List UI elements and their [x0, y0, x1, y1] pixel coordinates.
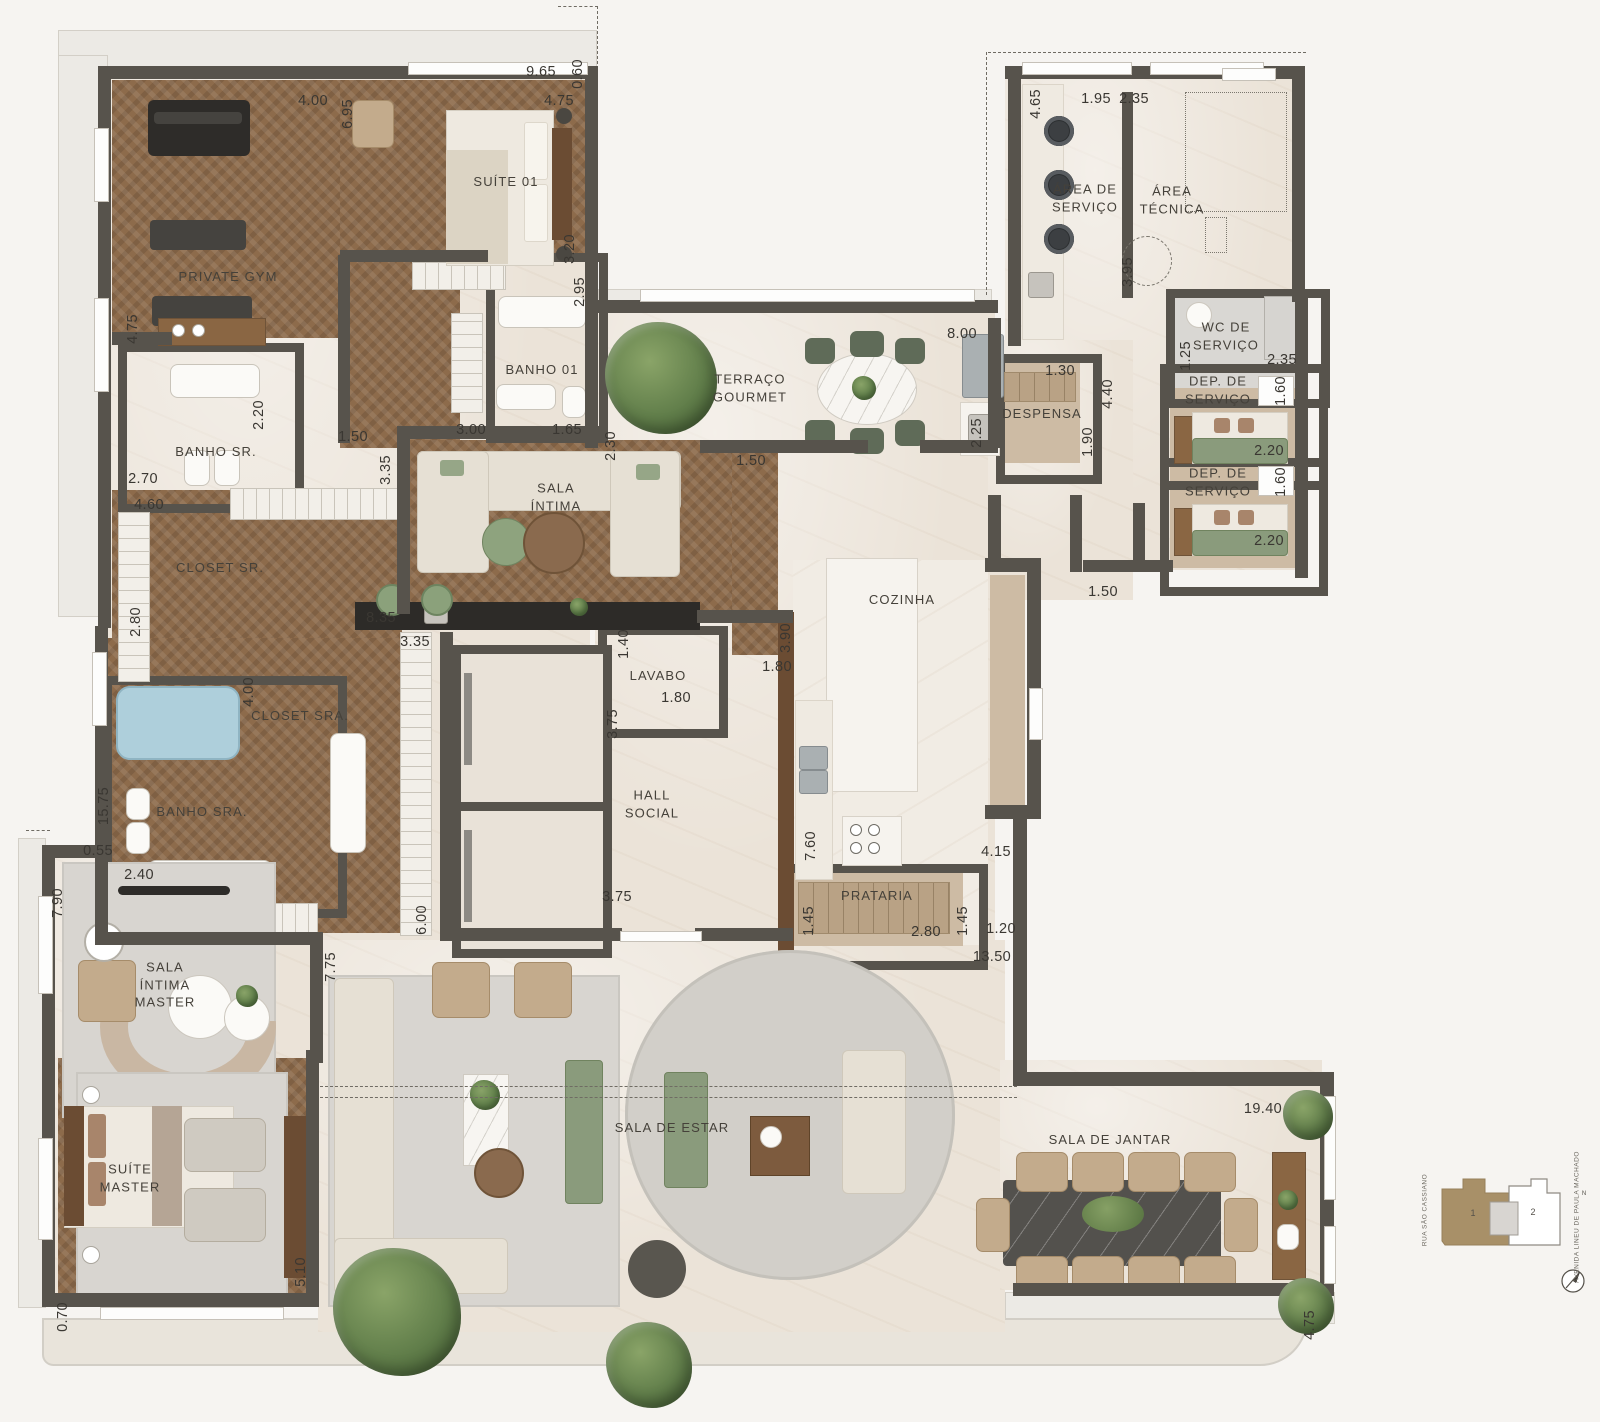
wall [700, 440, 795, 453]
dimension-label: 4.40 [1100, 379, 1116, 409]
furniture-dk2 [154, 112, 242, 124]
wardrobe [230, 488, 406, 520]
dimension-label: 1.30 [1045, 363, 1075, 379]
furniture-tub [116, 686, 240, 760]
dimension-label: 6.95 [340, 99, 356, 129]
room-label-terraco-gourmet: TERRAÇO GOURMET [713, 370, 787, 405]
dimension-label: 4.75 [1302, 1310, 1318, 1340]
site-key-unit2-number: 2 [1530, 1207, 1535, 1217]
room-label-suite-master: SUÍTE MASTER [100, 1160, 161, 1195]
furniture-dotw [82, 1246, 100, 1264]
dimension-label: 7.90 [50, 888, 66, 918]
furniture-circwood [523, 512, 585, 574]
room-label-area-tecnica: ÁREA TÉCNICA [1140, 182, 1205, 217]
furniture-chaise [184, 1118, 266, 1172]
dimension-label: 3.35 [378, 455, 394, 485]
street-label-left: RUA SÃO CASSIANO [1422, 1174, 1429, 1246]
dimension-label: 3.90 [778, 623, 794, 653]
window [100, 1307, 284, 1320]
dimension-label: 6.00 [414, 905, 430, 935]
room-label-lavabo: LAVABO [630, 667, 687, 685]
furniture-fixw [496, 384, 556, 410]
furniture-sofac [842, 1050, 906, 1194]
dimension-label: 3.75 [602, 889, 632, 905]
dimension-label: 1.60 [1273, 376, 1289, 406]
dimension-label: 1.50 [338, 429, 368, 445]
dashed-boundary [986, 52, 987, 295]
dimension-label: 2.95 [572, 277, 588, 307]
furniture-burn [868, 842, 880, 854]
wardrobe [412, 262, 506, 290]
furniture-tanc [1128, 1152, 1180, 1192]
dimension-label: 3.35 [400, 634, 430, 650]
furniture-pillbr [1238, 510, 1254, 525]
furniture-dk [148, 100, 250, 156]
dimension-label: 2.70 [128, 471, 158, 487]
dimension-label: 0.60 [570, 59, 586, 89]
room-label-banho-sra: BANHO SRA. [156, 803, 247, 821]
furniture-greenb [565, 1060, 603, 1204]
room-label-sala-intima-master: SALA ÍNTIMA MASTER [135, 959, 196, 1012]
dimension-label: 4.00 [241, 677, 257, 707]
dashed-boundary [26, 830, 50, 831]
furniture-blank [446, 150, 508, 264]
wall [440, 632, 453, 932]
dimension-label: 2.40 [124, 867, 154, 883]
dimension-label: 8.35 [366, 610, 396, 626]
furniture-woodc [1174, 416, 1194, 464]
dimension-label: 4.65 [1028, 89, 1044, 119]
room-label-closet-sr: CLOSET SR. [176, 559, 264, 577]
room-label-hall-social: HALL SOCIAL [625, 786, 679, 821]
dimension-label: 9.65 [526, 64, 556, 80]
wall [112, 332, 172, 345]
furniture-tanc [514, 962, 572, 1018]
room-label-area-de-servico: ÁREA DE SERVIÇO [1052, 180, 1118, 215]
elevator-door [464, 830, 472, 922]
room-label-private-gym: PRIVATE GYM [178, 268, 277, 286]
furniture-fixg [1028, 272, 1054, 298]
furniture-tanc [1072, 1152, 1124, 1192]
window [1022, 62, 1132, 75]
window [38, 1138, 53, 1240]
furniture-pillbr [1214, 510, 1230, 525]
dimension-label: 4.75 [125, 314, 141, 344]
furniture-stoolg [421, 584, 453, 616]
furniture-woodsq [750, 1116, 810, 1176]
wall [1295, 290, 1308, 578]
furniture-tanc [1016, 1152, 1068, 1192]
dimension-label: 15.75 [96, 787, 112, 825]
north-label: N [1582, 1191, 1586, 1197]
furniture-washer [1044, 224, 1074, 254]
dimension-label: 4.00 [298, 93, 328, 109]
wall [1083, 560, 1173, 572]
dimension-label: 3.00 [456, 422, 486, 438]
window [94, 128, 109, 202]
dimension-label: 2.20 [1254, 533, 1284, 549]
dimension-label: 2.35 [1119, 91, 1149, 107]
dimension-label: 7.60 [803, 831, 819, 861]
dimension-label: 4.75 [544, 93, 574, 109]
wall [695, 928, 793, 941]
furniture-fixw [126, 822, 150, 854]
dimension-label: 2.35 [1267, 352, 1297, 368]
dimension-label: 1.45 [955, 906, 971, 936]
furniture-pillbr [1238, 418, 1254, 433]
dimension-label: 1.50 [1088, 584, 1118, 600]
room-label-banho-sr: BANHO SR. [175, 443, 256, 461]
furniture-fixw [330, 733, 366, 853]
wall [95, 932, 317, 945]
room-label-cozinha: COZINHA [869, 591, 935, 609]
dimension-label: 1.80 [762, 659, 792, 675]
site-key-core-shape [1490, 1202, 1518, 1235]
furniture-tanc [1224, 1198, 1258, 1252]
window [94, 298, 109, 392]
dimension-label: 0.55 [83, 843, 113, 859]
dimension-label: 13.50 [973, 949, 1011, 965]
dimension-label: 2.80 [128, 607, 144, 637]
furniture-tanc [432, 962, 490, 1018]
furniture-plant [570, 598, 588, 616]
furniture-woodd [64, 1106, 84, 1226]
dimension-label: 1.40 [616, 629, 632, 659]
furniture-fixw [170, 364, 260, 398]
furniture-dk [118, 886, 230, 895]
dashed-boundary [597, 6, 598, 64]
wall [440, 928, 622, 941]
furniture-fixw [126, 788, 150, 820]
furniture-chaise [184, 1188, 266, 1242]
dimension-label: 1.90 [1080, 427, 1096, 457]
wardrobe [118, 512, 150, 682]
furniture-chairg [895, 338, 925, 364]
elevator-door [464, 673, 472, 765]
window [1222, 68, 1276, 81]
furniture-pillbr [88, 1114, 106, 1158]
furniture-chairg [805, 338, 835, 364]
dimension-label: 1.50 [736, 453, 766, 469]
street-label-right: AVENIDA LINEU DE PAULA MACHADO [1574, 1151, 1581, 1283]
wall [340, 250, 488, 262]
dimension-label: 1.45 [801, 906, 817, 936]
dimension-label: 3.20 [562, 234, 578, 264]
room-label-prataria: PRATARIA [841, 887, 913, 905]
tree [606, 1322, 692, 1408]
dimension-label: 2.30 [603, 431, 619, 461]
dimension-label: 1.20 [986, 921, 1016, 937]
wall [1008, 66, 1021, 346]
furniture-tanc [78, 960, 136, 1022]
dimension-label: 2.20 [1254, 443, 1284, 459]
dashed-boundary [320, 1086, 1017, 1087]
wood-floor [732, 443, 778, 655]
window [408, 62, 588, 75]
furniture-pillg [440, 460, 464, 476]
room-label-sala-de-estar: SALA DE ESTAR [615, 1119, 730, 1137]
furniture-frig [799, 746, 828, 770]
room-label-suite-01: SUÍTE 01 [473, 173, 538, 191]
furniture-plant [236, 985, 258, 1007]
room-label-dep-de-servico: DEP. DE SERVIÇO [1185, 464, 1251, 499]
elevator [452, 645, 612, 813]
furniture-burn [868, 824, 880, 836]
furniture-plant [470, 1080, 500, 1110]
room-label-sala-de-jantar: SALA DE JANTAR [1049, 1131, 1172, 1149]
room-label-wc-de-servico: WC DE SERVIÇO [1193, 318, 1259, 353]
dimension-label: 2.20 [251, 400, 267, 430]
site-key-unit1-number: 1 [1470, 1208, 1475, 1218]
wall [988, 318, 1001, 448]
dimension-label: 7.75 [323, 952, 339, 982]
window [640, 289, 975, 302]
furniture-tanc [1184, 1152, 1236, 1192]
furniture-dotw [82, 1086, 100, 1104]
dimension-label: 1.60 [1273, 467, 1289, 497]
room-label-dep-de-servico: DEP. DE SERVIÇO [1185, 372, 1251, 407]
dimension-label: 1.80 [661, 690, 691, 706]
room-label-closet-sra: CLOSET SRA. [251, 707, 349, 725]
furniture-dk2 [150, 220, 246, 250]
wall [42, 1293, 319, 1307]
wall [397, 426, 410, 614]
furniture-fixw [1277, 1224, 1299, 1250]
furniture-woodd [284, 1116, 306, 1278]
furniture-tanc [352, 100, 394, 148]
technical-area-equipment [1205, 217, 1227, 253]
window [1324, 1226, 1336, 1284]
dimension-label: 8.00 [947, 326, 977, 342]
furniture-burn [850, 824, 862, 836]
room-label-sala-intima: SALA ÍNTIMA [531, 479, 582, 514]
furniture-woodc [1174, 508, 1194, 556]
room-label-despensa: DESPENSA [1002, 405, 1082, 423]
dashed-boundary [320, 1097, 1017, 1098]
wardrobe [400, 632, 432, 936]
furniture-plant [1278, 1190, 1298, 1210]
furniture-plant [852, 376, 876, 400]
dimension-label: 1.65 [552, 422, 582, 438]
furniture-tanc [976, 1198, 1010, 1252]
furniture-chairg [850, 331, 884, 357]
floor-plan: 1 2 RUA SÃO CASSIANO AVENIDA LINEU DE PA… [0, 0, 1600, 1422]
wall [697, 610, 793, 623]
furniture-pillw [524, 184, 548, 242]
wall [793, 440, 868, 453]
furniture-pillbr [1214, 418, 1230, 433]
wall [920, 440, 998, 453]
room-label-banho-01: BANHO 01 [505, 361, 578, 379]
furniture-fire [628, 1240, 686, 1298]
wall [1133, 503, 1145, 572]
wall [338, 255, 350, 443]
wall [310, 932, 323, 1063]
furniture-pillg [636, 464, 660, 480]
furniture-dotw [192, 324, 205, 337]
dimension-label: 2.25 [969, 418, 985, 448]
wardrobe [451, 313, 483, 413]
furniture-plantell [1082, 1196, 1144, 1232]
furniture-woodc [1272, 1152, 1306, 1280]
dashed-boundary [558, 6, 598, 7]
dimension-label: 3.75 [605, 709, 621, 739]
service-floor [990, 575, 1025, 810]
wall [1070, 495, 1082, 572]
wall [1013, 940, 1027, 1085]
dimension-label: 4.60 [134, 497, 164, 513]
dimension-label: 5.10 [293, 1257, 309, 1287]
furniture-circw [760, 1126, 782, 1148]
furniture-washer [1044, 116, 1074, 146]
dimension-label: 0.70 [55, 1302, 71, 1332]
dimension-label: 4.15 [981, 844, 1011, 860]
furniture-woodd [552, 128, 572, 240]
dashed-boundary [988, 52, 1306, 53]
furniture-dotdk [556, 108, 572, 124]
dimension-label: 19.40 [1244, 1101, 1282, 1117]
furniture-pillw [524, 122, 548, 180]
dimension-label: 1.95 [1081, 91, 1111, 107]
furniture-fixw [562, 386, 586, 418]
wall [1292, 66, 1305, 302]
furniture-circwood [474, 1148, 524, 1198]
dimension-label: 2.80 [911, 924, 941, 940]
tree [1283, 1090, 1333, 1140]
window [620, 931, 702, 942]
furniture-burn [850, 842, 862, 854]
dimension-label: 1.25 [1178, 341, 1194, 371]
dimension-label: 3.95 [1120, 257, 1136, 287]
window [92, 652, 107, 726]
furniture-dotw [172, 324, 185, 337]
wall [1013, 1072, 1333, 1086]
window [1029, 688, 1043, 740]
furniture-frig [799, 770, 828, 794]
